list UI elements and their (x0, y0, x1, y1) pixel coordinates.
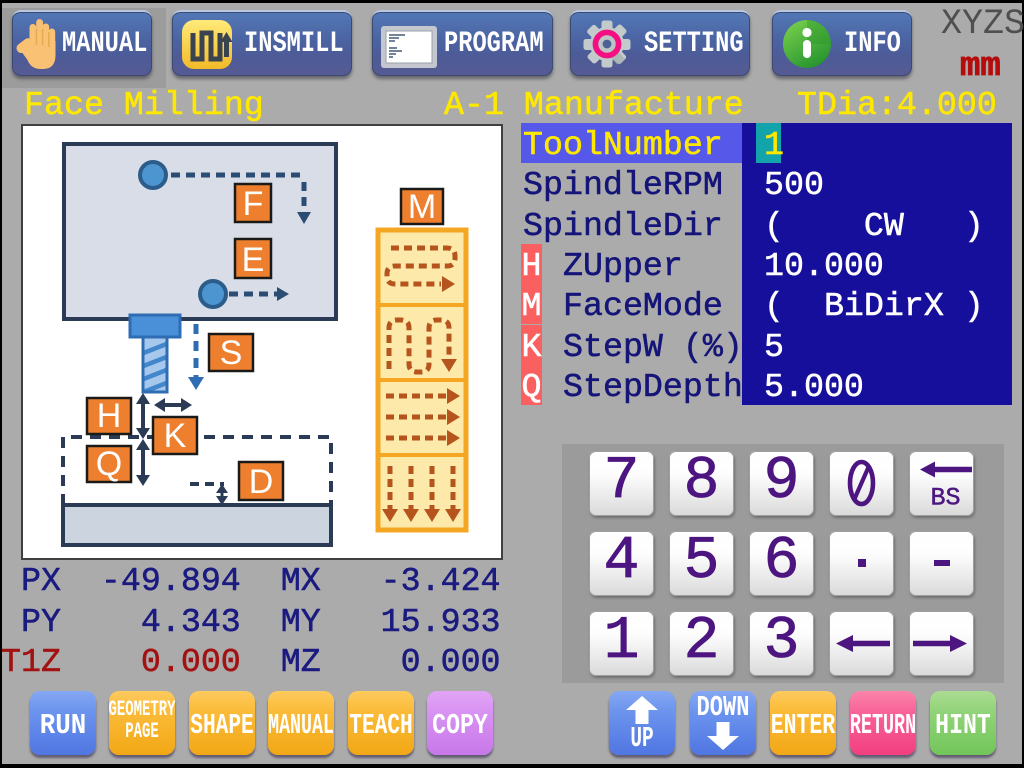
svg-text:BS: BS (930, 484, 960, 513)
svg-text:F: F (243, 185, 264, 223)
svg-text:K: K (164, 417, 187, 455)
svg-text:D: D (249, 463, 274, 501)
svg-text:H: H (97, 397, 122, 435)
svg-text:Q: Q (96, 445, 122, 483)
svg-text:S: S (220, 334, 243, 372)
svg-text:M: M (408, 188, 436, 226)
svg-text:E: E (242, 241, 265, 279)
